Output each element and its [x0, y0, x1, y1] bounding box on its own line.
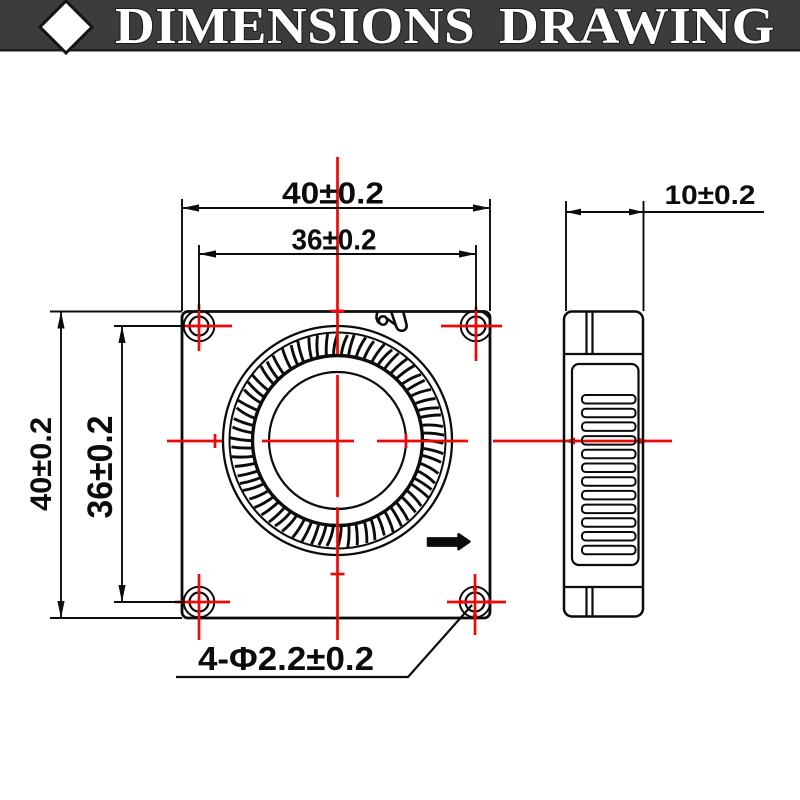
svg-text:4-Φ2.2±0.2: 4-Φ2.2±0.2 [198, 640, 374, 677]
svg-text:36±0.2: 36±0.2 [292, 225, 377, 257]
svg-text:36±0.2: 36±0.2 [81, 416, 120, 519]
svg-text:10±0.2: 10±0.2 [665, 180, 756, 210]
svg-text:40±0.2: 40±0.2 [282, 176, 384, 211]
svg-text:DIMENSIONS DRAWING: DIMENSIONS DRAWING [115, 0, 775, 55]
svg-text:40±0.2: 40±0.2 [25, 417, 58, 511]
